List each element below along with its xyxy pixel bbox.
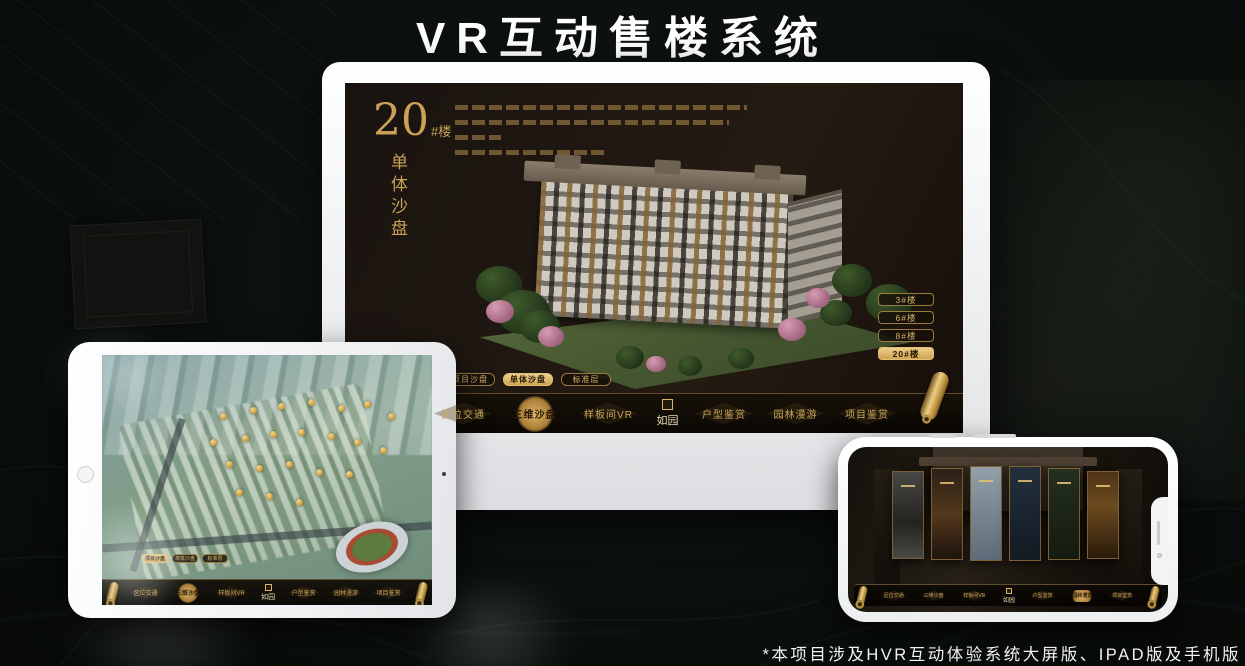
roof-dormer: [554, 154, 581, 169]
nav-item-location[interactable]: 区位交通: [882, 590, 906, 601]
logo-seal-icon: [662, 399, 673, 410]
gallery-panel[interactable]: [931, 468, 963, 560]
nav-item-sandbox[interactable]: 三维沙盘: [921, 590, 945, 601]
building-number-suffix: #楼: [431, 121, 451, 140]
phone-side-button: [930, 434, 956, 438]
logo-text: 如园: [656, 412, 678, 428]
nav-item-garden-tour-active[interactable]: 园林漫游: [1070, 590, 1094, 601]
phone-mockup: 区位交通 三维沙盘 样板间VR 如园 户型鉴赏 园林漫游 项目鉴赏: [838, 437, 1178, 622]
building-marker[interactable]: [328, 433, 335, 440]
building-marker[interactable]: [250, 407, 257, 414]
gallery-panel[interactable]: [1009, 466, 1041, 561]
scroll-end-icon: [1148, 585, 1160, 605]
roof-dormer: [754, 165, 781, 180]
building-marker[interactable]: [242, 435, 249, 442]
scroll-end-icon: [856, 585, 868, 605]
model-building-front: [535, 178, 794, 329]
brand-logo: 如园: [261, 584, 275, 602]
nav-item-unit-gallery[interactable]: 户型鉴赏: [698, 403, 750, 424]
floor-button-active[interactable]: 20#楼: [878, 347, 934, 360]
nav-item-unit-gallery[interactable]: 户型鉴赏: [290, 586, 318, 599]
logo-seal-icon: [1006, 588, 1012, 594]
nav-item-showroom-vr[interactable]: 样板间VR: [216, 586, 246, 599]
view-tab[interactable]: 标准层: [561, 373, 611, 386]
speaker-icon: [1157, 521, 1160, 545]
building-marker[interactable]: [266, 493, 273, 500]
camera-icon: [1157, 553, 1162, 558]
roof-dormer: [654, 159, 681, 174]
building-marker[interactable]: [220, 413, 227, 420]
stage: VR互动售楼系统 20 #楼 单体沙盘: [0, 0, 1245, 666]
nav-item-garden-tour[interactable]: 园林漫游: [332, 586, 360, 599]
nav-item-project-gallery[interactable]: 项目鉴赏: [1110, 590, 1134, 601]
building-subtitle: 单体沙盘: [385, 153, 410, 241]
building-marker[interactable]: [338, 405, 345, 412]
home-button[interactable]: [77, 466, 94, 483]
building-marker[interactable]: [226, 461, 233, 468]
floor-button[interactable]: 3#楼: [878, 293, 934, 306]
gallery-panel[interactable]: [970, 466, 1002, 561]
gallery-panel[interactable]: [1087, 471, 1119, 559]
footnote: *本项目涉及HVR互动体验系统大屏版、IPAD版及手机版: [762, 641, 1241, 665]
floor-button[interactable]: 8#楼: [878, 329, 934, 342]
building-marker[interactable]: [380, 447, 387, 454]
page-title: VR互动售楼系统: [0, 2, 1245, 66]
nav-item-unit-gallery[interactable]: 户型鉴赏: [1031, 590, 1055, 601]
building-marker[interactable]: [298, 429, 305, 436]
nav-item-showroom-vr[interactable]: 样板间VR: [580, 403, 637, 424]
view-tab-active[interactable]: 单体沙盘: [503, 373, 553, 386]
tablet-screen: 项目沙盘 单体沙盘 标准层 区位交通 三维沙盘 样板间VR 如园 户型鉴赏 园林…: [102, 355, 432, 605]
nav-item-garden-tour[interactable]: 园林漫游: [769, 403, 821, 424]
gallery-panel[interactable]: [892, 471, 924, 559]
flower-tree-decor: [778, 318, 806, 341]
building-marker[interactable]: [346, 471, 353, 478]
phone-screen: 区位交通 三维沙盘 样板间VR 如园 户型鉴赏 园林漫游 项目鉴赏: [848, 447, 1168, 612]
phone-notch: [1151, 497, 1168, 585]
description-text-block: [455, 105, 755, 165]
gallery-panel[interactable]: [1048, 468, 1080, 560]
nav-item-location[interactable]: 区位交通: [437, 403, 489, 424]
tree-decor: [616, 346, 644, 369]
building-number: 20: [373, 95, 429, 146]
building-marker[interactable]: [354, 439, 361, 446]
logo-text: 如园: [1003, 595, 1015, 604]
phone-side-button: [974, 434, 1016, 438]
gate-pillar: [1116, 469, 1142, 589]
nav-item-sandbox-active[interactable]: 三维沙盘: [509, 403, 561, 424]
nav-item-project-gallery[interactable]: 项目鉴赏: [841, 403, 893, 424]
scroll-end-icon: [414, 581, 428, 605]
nav-item-project-gallery[interactable]: 项目鉴赏: [374, 586, 402, 599]
building-marker[interactable]: [286, 461, 293, 468]
floor-button-group: 3#楼 6#楼 8#楼 20#楼: [878, 293, 934, 360]
building-marker[interactable]: [316, 469, 323, 476]
logo-seal-icon: [265, 584, 272, 591]
building-marker[interactable]: [308, 399, 315, 406]
building-marker[interactable]: [364, 401, 371, 408]
building-marker[interactable]: [210, 439, 217, 446]
building-marker[interactable]: [236, 489, 243, 496]
building-marker[interactable]: [278, 403, 285, 410]
background-plaque: [69, 219, 206, 330]
building-3d-model[interactable]: [480, 168, 910, 398]
phone-nav-bar: 区位交通 三维沙盘 样板间VR 如园 户型鉴赏 园林漫游 项目鉴赏: [854, 584, 1162, 606]
building-marker[interactable]: [296, 499, 303, 506]
tree-decor: [832, 264, 872, 297]
view-tab[interactable]: 标准层: [202, 554, 228, 563]
flower-tree-decor: [486, 300, 514, 323]
camera-icon: [442, 472, 446, 476]
floor-button[interactable]: 6#楼: [878, 311, 934, 324]
tablet-mockup: 项目沙盘 单体沙盘 标准层 区位交通 三维沙盘 样板间VR 如园 户型鉴赏 园林…: [68, 342, 456, 618]
building-marker[interactable]: [388, 413, 395, 420]
brand-logo: 如园: [1003, 588, 1015, 604]
tree-decor: [678, 356, 702, 376]
nav-item-showroom-vr[interactable]: 样板间VR: [961, 590, 987, 601]
building-marker[interactable]: [256, 465, 263, 472]
logo-text: 如园: [261, 592, 275, 602]
brand-logo: 如园: [656, 399, 678, 428]
flower-tree-decor: [806, 288, 830, 308]
view-tab-group: 项目沙盘 单体沙盘 标准层: [445, 373, 611, 386]
building-marker[interactable]: [270, 431, 277, 438]
